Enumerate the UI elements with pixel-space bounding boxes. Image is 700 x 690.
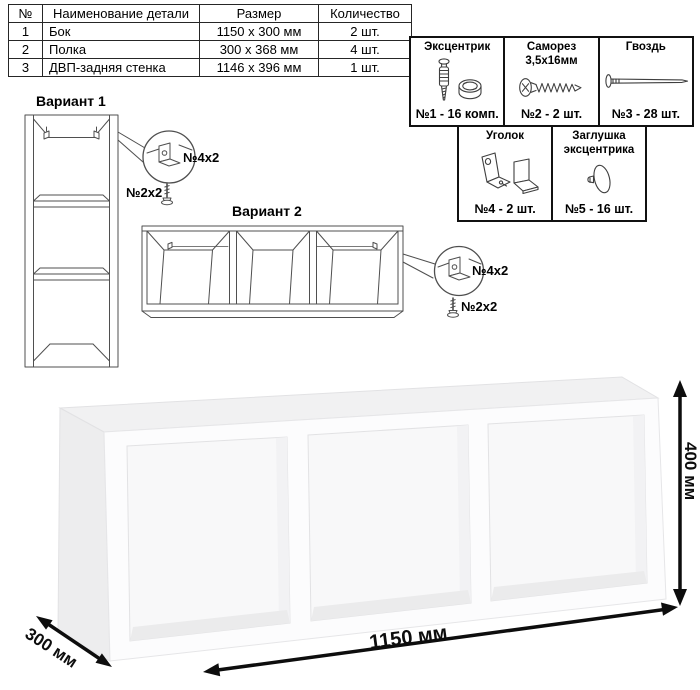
part-name: Полка: [43, 41, 200, 59]
col-header-qty: Количество: [319, 5, 412, 23]
part-num: 3: [9, 59, 43, 77]
variant1-screw-label: №2х2: [126, 185, 162, 200]
nail-icon: [602, 55, 690, 107]
shelf-3d-render: [0, 370, 700, 690]
variant2-drawing: [140, 220, 525, 338]
hardware-item-label: №1 - 16 комп.: [416, 107, 499, 121]
hardware-item-title: Эксцентрик: [424, 41, 490, 55]
table-row: 2 Полка 300 х 368 мм 4 шт.: [9, 41, 412, 59]
table-row: 1 Бок 1150 х 300 мм 2 шт.: [9, 23, 412, 41]
parts-table: № Наименование детали Размер Количество …: [8, 4, 412, 77]
cam-cap-icon: [581, 158, 617, 202]
cam-bolt-icon: [427, 55, 487, 107]
assembly-instruction-sheet: № Наименование детали Размер Количество …: [0, 0, 700, 690]
part-size: 1146 х 396 мм: [200, 59, 319, 77]
hardware-item-title: Уголок: [486, 130, 524, 144]
part-size: 300 х 368 мм: [200, 41, 319, 59]
part-num: 2: [9, 41, 43, 59]
hardware-item-label: №3 - 28 шт.: [612, 107, 680, 121]
screw-icon: [517, 69, 585, 107]
hardware-item-label: №2 - 2 шт.: [521, 107, 582, 121]
col-header-num: №: [9, 5, 43, 23]
table-row: 3 ДВП-задняя стенка 1146 х 396 мм 1 шт.: [9, 59, 412, 77]
hardware-item-title: Саморез 3,5х16мм: [507, 41, 595, 69]
part-num: 1: [9, 23, 43, 41]
col-header-name: Наименование детали: [43, 5, 200, 23]
hardware-item-title: Заглушка эксцентрика: [555, 130, 643, 158]
hardware-box-row2: Уголок №4 - 2 шт. Заглушка эксцентрика: [457, 125, 647, 222]
part-qty: 2 шт.: [319, 23, 412, 41]
part-name: ДВП-задняя стенка: [43, 59, 200, 77]
hardware-item-nail: Гвоздь №3 - 28 шт.: [600, 38, 692, 125]
variant1-bracket-label: №4х2: [183, 150, 219, 165]
hardware-item-title: Гвоздь: [626, 41, 666, 55]
part-name: Бок: [43, 23, 200, 41]
col-header-size: Размер: [200, 5, 319, 23]
height-dimension-label: 400 мм: [680, 442, 700, 500]
hardware-item-label: №4 - 2 шт.: [474, 202, 535, 216]
variant2-title: Вариант 2: [232, 203, 302, 219]
part-qty: 4 шт.: [319, 41, 412, 59]
hardware-item-screw: Саморез 3,5х16мм №2 - 2 шт.: [505, 38, 599, 125]
parts-table-header-row: № Наименование детали Размер Количество: [9, 5, 412, 23]
corner-bracket-icon: [470, 144, 540, 202]
part-size: 1150 х 300 мм: [200, 23, 319, 41]
hardware-item-bracket: Уголок №4 - 2 шт.: [459, 127, 553, 220]
hardware-box-row1: Эксцентрик №1 - 16 комп.: [409, 36, 694, 127]
variant1-title: Вариант 1: [36, 93, 106, 109]
hardware-item-label: №5 - 16 шт.: [565, 202, 633, 216]
hardware-item-cap: Заглушка эксцентрика №5 - 16 шт.: [553, 127, 645, 220]
part-qty: 1 шт.: [319, 59, 412, 77]
variant2-bracket-label: №4х2: [472, 263, 508, 278]
variant2-screw-label: №2х2: [461, 299, 497, 314]
hardware-item-cam: Эксцентрик №1 - 16 комп.: [411, 38, 505, 125]
